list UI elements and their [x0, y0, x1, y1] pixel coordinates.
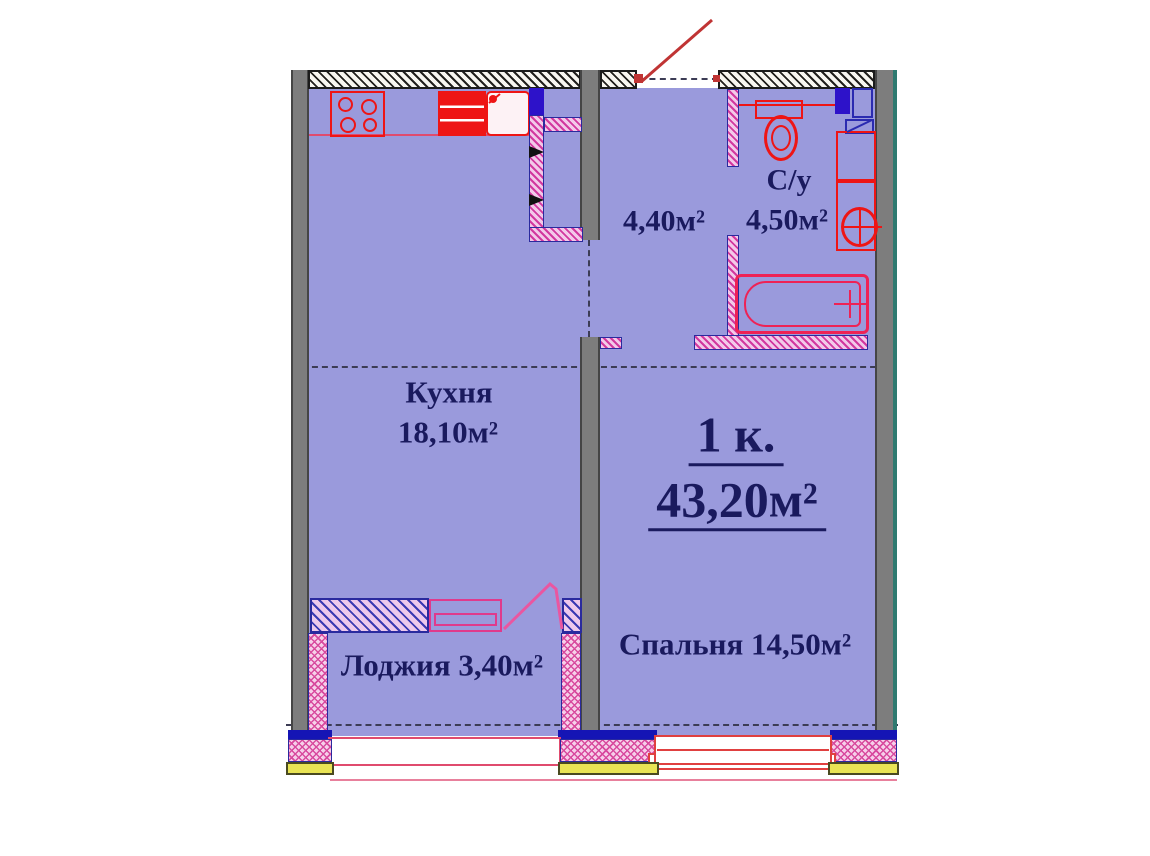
kitchen-sink-icon: [486, 91, 530, 136]
wall-stub-kitchen-opening-bottom: [600, 337, 622, 349]
bathtub-inner: [744, 281, 861, 327]
central-pillar-main: [580, 337, 600, 737]
right-wall: [875, 70, 897, 764]
bathroom-wall-bottom: [694, 335, 868, 350]
vent-shaft-wall-vertical: [529, 115, 544, 242]
stove-burner-icon: [338, 97, 353, 112]
bedroom-window-mullion: [657, 749, 829, 751]
washing-machine-icon: [836, 131, 876, 181]
facade-frame-right: [830, 730, 897, 739]
window-sill-center: [558, 762, 659, 775]
hallway-area-label: 4,40м²: [623, 205, 705, 237]
facade-pier-left: [288, 739, 332, 762]
bedroom-area-label: 14,50м²: [751, 627, 851, 662]
kitchen-opening-axis: [588, 240, 590, 337]
bathroom-cabinet-icon: [852, 88, 873, 118]
window-sill-right: [828, 762, 899, 775]
unit-total-area-label: 43,20м²: [648, 473, 826, 531]
vent-duct-kitchen-icon: [529, 88, 544, 115]
entry-door-swing-icon: [641, 20, 712, 82]
vent-duct-bathroom-icon: [835, 88, 850, 114]
loggia-pier-right: [561, 633, 581, 735]
balcony-door-jamb: [562, 598, 582, 633]
balcony-block-wall: [310, 598, 429, 633]
facade-pier-center: [560, 739, 657, 762]
vent-shaft-wall-top: [544, 117, 582, 132]
floor-plan-canvas: 4,40м² С/у 4,50м² Кухня 18,10м² 1 к. 43,…: [0, 0, 1150, 856]
window-sill-left: [286, 762, 334, 775]
entry-threshold-line: [639, 78, 718, 80]
top-wall-segment-kitchen: [308, 70, 581, 89]
washbasin-icon: [841, 207, 878, 247]
stove-icon: [330, 91, 385, 137]
balcony-window-inner: [434, 613, 497, 626]
kitchen-name-label: Кухня: [405, 377, 492, 410]
facade-pier-right: [830, 739, 897, 762]
loggia-name-label: Лоджия: [341, 648, 451, 683]
bedroom-label: Спальня 14,50м²: [619, 629, 851, 662]
central-pillar-top: [580, 70, 600, 240]
top-wall-segment-bathroom: [718, 70, 875, 89]
top-wall-segment-hall: [600, 70, 637, 89]
kitchen-cabinet-icon: [438, 91, 486, 136]
kitchen-area-label: 18,10м²: [398, 417, 498, 450]
stove-burner-icon: [363, 118, 377, 132]
bathroom-wall-upper: [727, 89, 739, 167]
facade-frame-center: [558, 730, 657, 739]
bedroom-name-label: Спальня: [619, 627, 743, 662]
bathroom-area-label: 4,50м²: [746, 204, 828, 236]
left-wall: [291, 70, 309, 738]
vent-shaft-wall-bottom: [529, 227, 583, 242]
stove-burner-icon: [340, 117, 356, 133]
unit-rooms-label: 1 к.: [689, 408, 784, 466]
loggia-glazing: [328, 737, 561, 766]
facade-frame-left: [288, 730, 332, 739]
facade-face-line: [330, 779, 897, 781]
loggia-label: Лоджия 3,40м²: [341, 650, 543, 683]
loggia-area-label: 3,40м²: [458, 648, 543, 683]
stove-burner-icon: [361, 99, 377, 115]
toilet-bowl-inner: [771, 125, 791, 151]
bathroom-name-label: С/у: [767, 164, 812, 196]
loggia-pier-left: [308, 633, 328, 735]
